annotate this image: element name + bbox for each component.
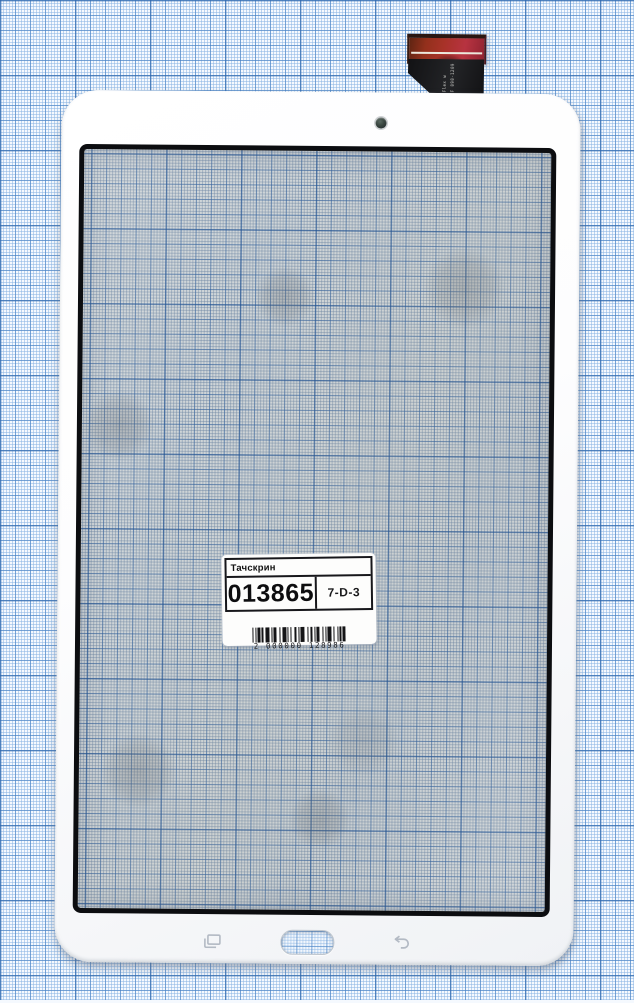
adhesive-smudge (101, 733, 177, 809)
label-title: Тачскрин (226, 558, 370, 578)
label-code: 013865 (227, 577, 317, 610)
inventory-label: Тачскрин 013865 7-D-3 2 000000 128986 (221, 553, 376, 646)
adhesive-smudge (289, 789, 350, 850)
barcode: 2 000000 128986 (225, 610, 374, 651)
back-arrow-icon (389, 935, 411, 952)
label-table: Тачскрин 013865 7-D-3 (224, 556, 373, 612)
label-bin-code: 7-D-3 (317, 576, 372, 609)
digitizer-assembly: Φ-Flex w DCF 090-1209 (0, 0, 634, 1003)
tablet-front-glass (54, 90, 581, 966)
front-camera-hole (376, 117, 387, 128)
screen-glass-area (73, 144, 557, 917)
adhesive-smudge (424, 248, 505, 329)
adhesive-smudge (84, 390, 155, 461)
recent-apps-icon (201, 933, 223, 950)
adhesive-smudge (255, 266, 316, 327)
adhesive-smudge (328, 706, 399, 777)
home-button-cutout (280, 930, 334, 955)
